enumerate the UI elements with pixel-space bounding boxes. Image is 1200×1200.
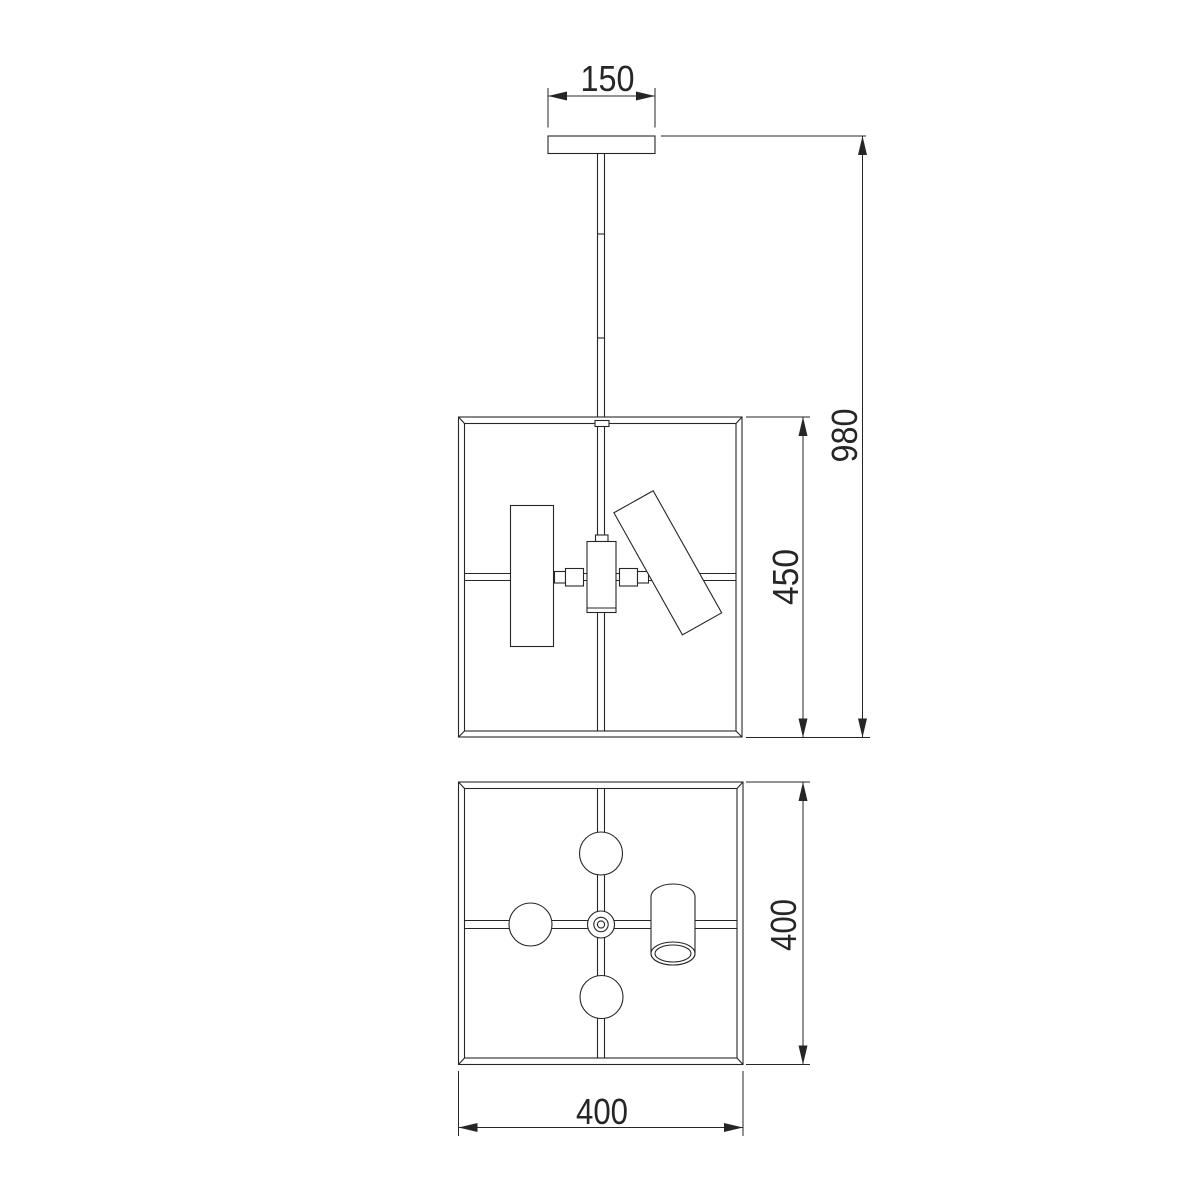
dim-label-plan-height: 400 [763,899,804,951]
hub-cap [596,535,609,542]
plan-spot-top [580,832,623,875]
technical-drawing-canvas: 150 980 450 400 400 [0,0,1200,1200]
plan-view [459,782,744,1065]
dimension-frame-height: 450 [746,417,810,738]
rod-collar [595,421,609,427]
dimension-overall-height: 980 [661,136,870,738]
dimension-canopy-width: 150 [548,58,655,128]
spot-right-tilted [614,491,722,635]
dim-label-frame-height: 450 [765,549,806,605]
arrowhead-down [799,719,808,738]
arrowhead-right [724,1123,743,1132]
plan-spot-left [509,903,552,946]
suspension-rod [597,154,605,418]
arrowhead-up [799,782,808,801]
dimension-plan-width: 400 [459,1071,744,1136]
dim-label-plan-width: 400 [576,1091,628,1132]
canopy-plate [548,136,655,154]
plan-spot-cylinder [651,884,695,965]
connector-right-body [620,569,638,587]
arrowhead-left [548,92,567,101]
connector-right-tip [638,572,649,584]
dim-label-overall-height: 980 [824,409,865,463]
connector-left-tip [555,572,566,584]
connector-left-body [566,569,584,587]
arrowhead-down [858,719,867,738]
arrowhead-up [858,136,867,155]
hub-body [587,542,616,613]
dimension-plan-height: 400 [746,782,810,1065]
spot-left [511,506,554,647]
plan-spot-bottom [580,976,623,1019]
front-view [459,136,743,737]
plan-center-hub [588,911,615,938]
arrowhead-down [799,1046,808,1065]
pendant-lamp-drawing: 150 980 450 400 400 [0,0,1200,1200]
arrowhead-right [636,92,655,101]
dim-label-canopy-width: 150 [581,58,635,99]
arrowhead-up [799,417,808,436]
arrowhead-left [459,1123,478,1132]
center-hub-cylinder [587,535,616,613]
